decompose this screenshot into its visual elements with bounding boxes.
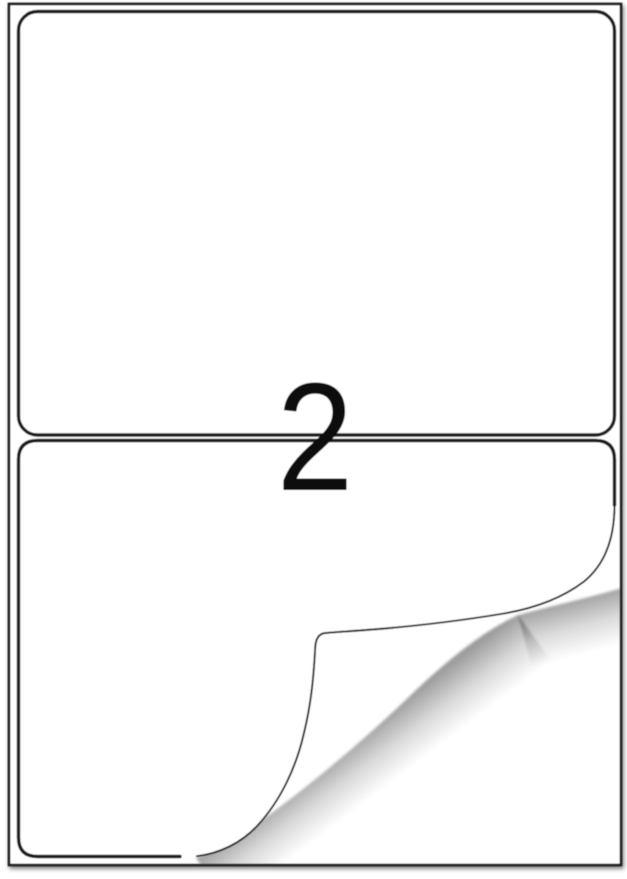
labels-per-sheet-count: 2 — [276, 351, 353, 523]
label-sheet-illustration: 2 — [0, 0, 627, 879]
label-sheet-product-image: 2 — [0, 0, 627, 879]
